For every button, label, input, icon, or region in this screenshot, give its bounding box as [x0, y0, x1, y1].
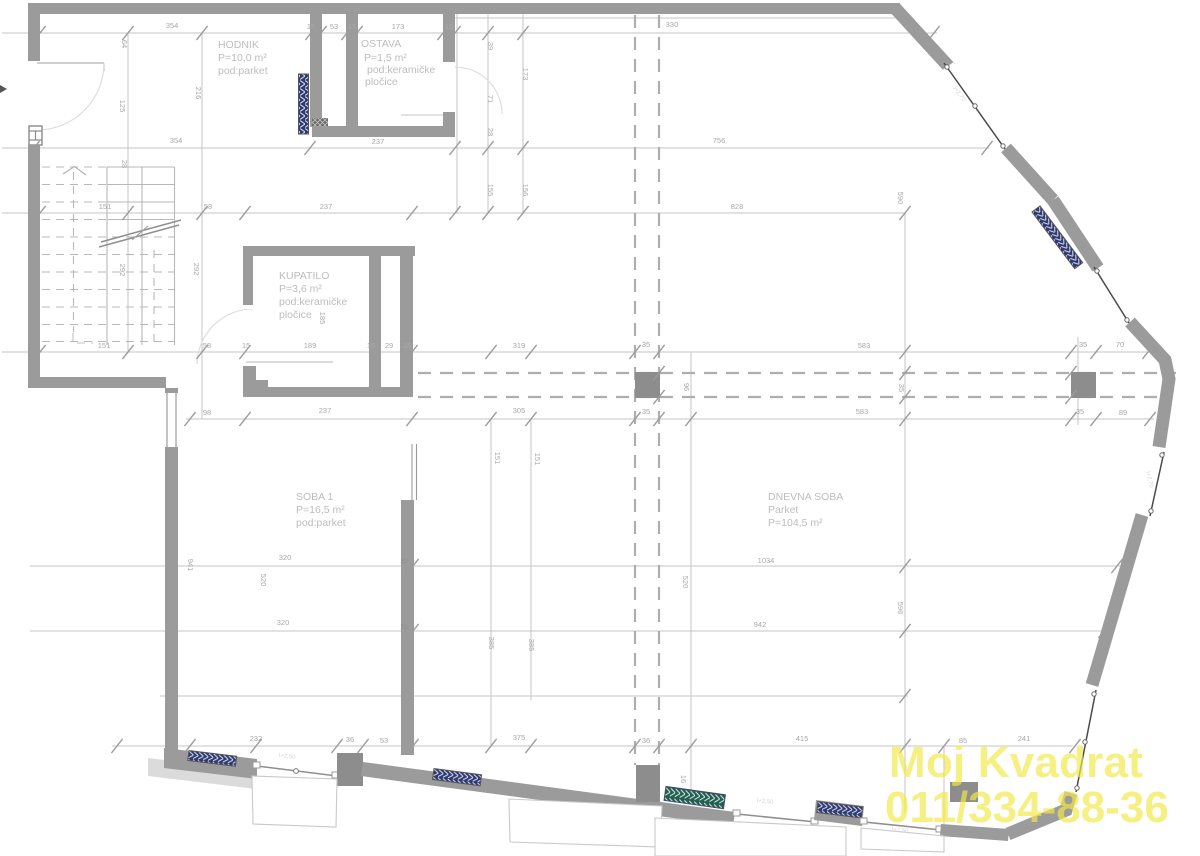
svg-text:pod:keramičke: pod:keramičke — [279, 296, 347, 308]
svg-text:HODNIK: HODNIK — [218, 39, 259, 51]
svg-text:155: 155 — [486, 184, 495, 197]
svg-text:151: 151 — [493, 452, 502, 465]
svg-text:64: 64 — [120, 40, 129, 48]
svg-text:71: 71 — [486, 95, 495, 103]
svg-text:15: 15 — [400, 558, 408, 565]
svg-text:35: 35 — [897, 384, 906, 392]
svg-text:pod:parket: pod:parket — [296, 517, 346, 529]
svg-text:P=3,6 m²: P=3,6 m² — [279, 283, 322, 295]
svg-text:SOBA 1: SOBA 1 — [296, 491, 334, 503]
svg-text:415: 415 — [796, 734, 809, 743]
svg-text:756: 756 — [713, 136, 726, 145]
svg-text:596: 596 — [896, 602, 905, 615]
svg-text:pod:parket: pod:parket — [218, 65, 268, 77]
svg-text:156: 156 — [521, 184, 530, 197]
svg-text:KUPATILO: KUPATILO — [279, 270, 329, 282]
svg-text:385: 385 — [487, 637, 496, 650]
svg-text:P=10,0 m²: P=10,0 m² — [218, 52, 267, 64]
svg-text:Moj Kvadrat: Moj Kvadrat — [889, 738, 1143, 787]
svg-text:15: 15 — [445, 22, 453, 31]
svg-text:011/334-88-36: 011/334-88-36 — [885, 783, 1169, 832]
svg-text:354: 354 — [166, 21, 179, 30]
svg-text:151: 151 — [533, 453, 542, 466]
svg-text:96: 96 — [682, 383, 691, 391]
svg-text:35: 35 — [1076, 407, 1084, 416]
svg-text:28: 28 — [120, 160, 129, 168]
svg-text:216: 216 — [194, 87, 203, 100]
svg-text:36: 36 — [642, 736, 650, 745]
svg-text:58: 58 — [203, 341, 211, 350]
svg-text:pločice: pločice — [365, 76, 398, 88]
svg-text:942: 942 — [754, 620, 767, 629]
svg-text:P=16,5 m²: P=16,5 m² — [296, 504, 345, 516]
svg-text:125: 125 — [118, 100, 127, 113]
svg-text:pločice: pločice — [279, 309, 312, 321]
svg-text:Parket: Parket — [768, 504, 798, 516]
svg-text:385: 385 — [527, 639, 536, 652]
svg-text:15: 15 — [307, 22, 315, 31]
svg-text:941: 941 — [186, 559, 195, 572]
svg-text:28: 28 — [486, 128, 495, 136]
svg-text:29: 29 — [385, 341, 393, 350]
svg-text:305: 305 — [513, 406, 526, 415]
svg-text:237: 237 — [320, 202, 333, 211]
svg-text:pod:keramičke: pod:keramičke — [367, 64, 435, 76]
svg-text:1034: 1034 — [758, 556, 775, 565]
svg-text:828: 828 — [731, 202, 744, 211]
svg-text:15: 15 — [403, 341, 411, 350]
svg-text:185: 185 — [318, 312, 327, 325]
svg-text:237: 237 — [319, 406, 332, 415]
svg-text:583: 583 — [856, 407, 869, 416]
svg-text:320: 320 — [279, 553, 292, 562]
svg-text:375: 375 — [513, 733, 526, 742]
svg-text:53: 53 — [380, 736, 388, 745]
svg-text:15: 15 — [242, 341, 250, 350]
svg-text:89: 89 — [1119, 408, 1127, 417]
svg-text:151: 151 — [99, 202, 112, 211]
svg-text:70: 70 — [1116, 340, 1124, 349]
svg-text:232: 232 — [250, 734, 263, 743]
svg-text:320: 320 — [277, 618, 290, 627]
svg-text:330: 330 — [666, 20, 679, 29]
svg-text:98: 98 — [203, 408, 211, 417]
svg-text:590: 590 — [896, 192, 905, 205]
svg-text:520: 520 — [681, 576, 690, 589]
svg-text:P=1,5 m²: P=1,5 m² — [364, 52, 407, 64]
svg-text:319: 319 — [513, 341, 526, 350]
svg-text:189: 189 — [304, 341, 317, 350]
svg-text:39: 39 — [486, 42, 495, 50]
svg-text:58: 58 — [204, 202, 212, 211]
svg-text:35: 35 — [642, 407, 650, 416]
svg-text:151: 151 — [98, 341, 111, 350]
svg-text:173: 173 — [392, 22, 405, 31]
svg-text:35: 35 — [642, 340, 650, 349]
svg-text:53: 53 — [330, 22, 338, 31]
svg-text:583: 583 — [858, 341, 871, 350]
svg-text:292: 292 — [192, 263, 201, 276]
svg-text:OSTAVA: OSTAVA — [361, 38, 401, 50]
svg-text:DNEVNA SOBA: DNEVNA SOBA — [768, 491, 843, 503]
svg-text:16: 16 — [679, 775, 688, 783]
svg-text:15: 15 — [348, 22, 356, 31]
svg-text:36: 36 — [346, 735, 354, 744]
svg-text:237: 237 — [372, 137, 385, 146]
svg-text:292: 292 — [118, 264, 127, 277]
svg-text:520: 520 — [259, 574, 268, 587]
svg-text:15: 15 — [400, 624, 408, 631]
svg-text:P=104,5 m²: P=104,5 m² — [768, 517, 823, 529]
svg-text:35: 35 — [1079, 340, 1087, 349]
svg-text:173: 173 — [521, 68, 530, 81]
svg-text:354: 354 — [170, 136, 183, 145]
svg-text:15: 15 — [367, 341, 375, 350]
